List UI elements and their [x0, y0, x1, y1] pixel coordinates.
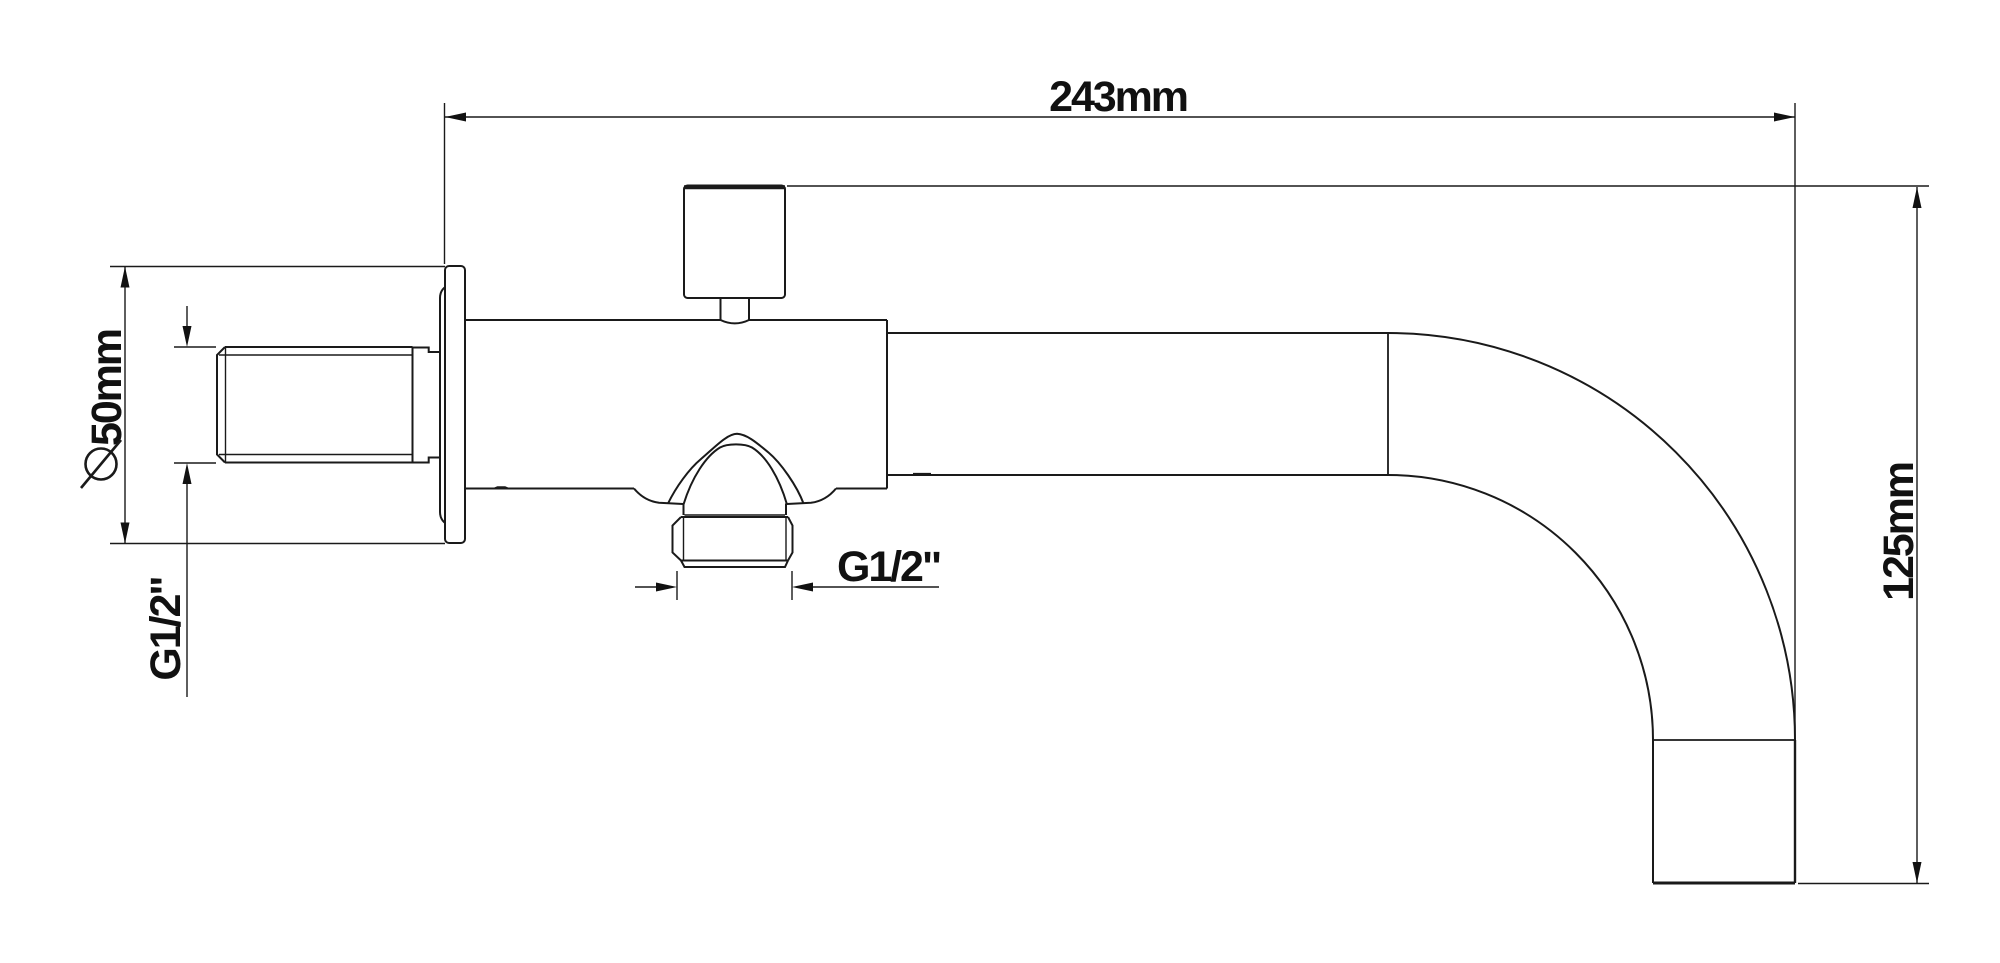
svg-text:G1/2": G1/2" — [837, 543, 940, 591]
svg-text:50mm: 50mm — [83, 330, 131, 446]
svg-text:125mm: 125mm — [1875, 463, 1923, 601]
svg-text:243mm: 243mm — [1049, 73, 1187, 121]
svg-text:G1/2": G1/2" — [142, 577, 190, 680]
